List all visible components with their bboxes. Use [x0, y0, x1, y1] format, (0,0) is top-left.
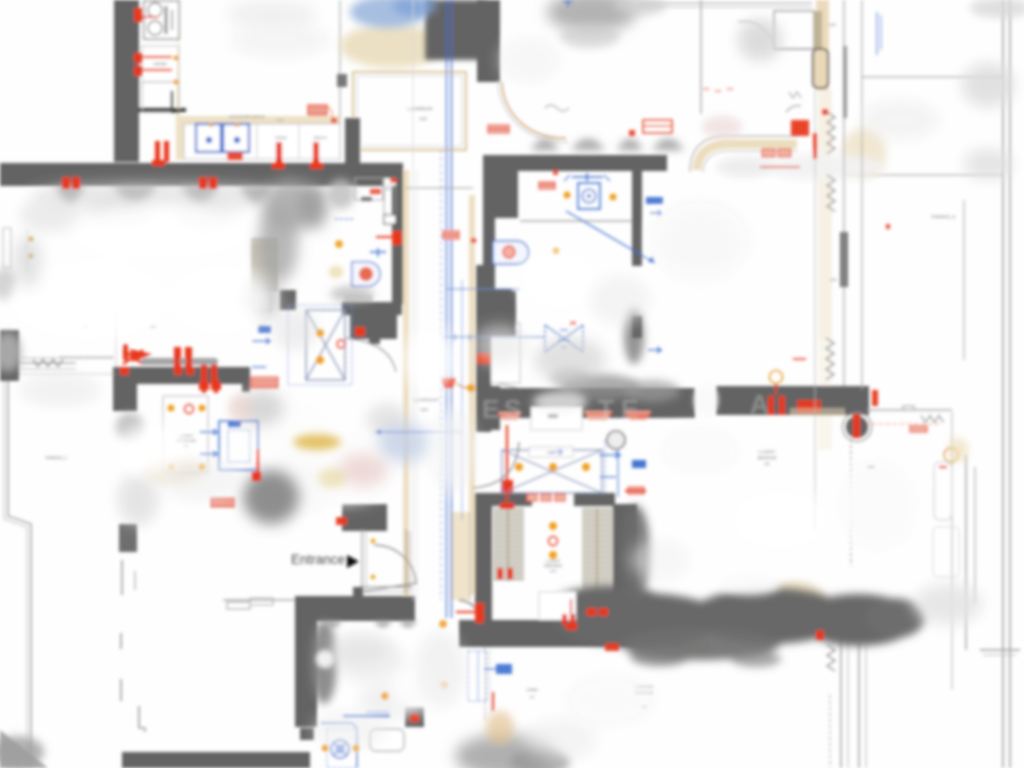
svg-text:Entrance: Entrance — [291, 552, 345, 567]
svg-text:WASH M: WASH M — [314, 136, 327, 140]
svg-text:A: A — [750, 389, 769, 419]
svg-text:S: S — [504, 394, 521, 424]
svg-text:I_CORRIDOR: I_CORRIDOR — [407, 106, 432, 111]
svg-text:TERRACE_A: TERRACE_A — [931, 214, 955, 219]
svg-text:KUCHTA APPLIANCES: KUCHTA APPLIANCES — [229, 115, 265, 119]
svg-text:4x26: 4x26 — [277, 118, 284, 122]
svg-text:4x5: 4x5 — [259, 324, 265, 328]
svg-text:4x26: 4x26 — [419, 117, 427, 121]
svg-text:4x5: 4x5 — [764, 462, 769, 466]
svg-text:E: E — [621, 394, 638, 424]
svg-text:4x26: 4x26 — [550, 569, 557, 573]
svg-text:I_CORRIDOR: I_CORRIDOR — [413, 397, 438, 402]
svg-text:4x5: 4x5 — [530, 695, 535, 699]
svg-text:TERRACE_C: TERRACE_C — [45, 456, 67, 460]
svg-text:4x26: 4x26 — [420, 408, 428, 412]
svg-text:FRIDGE: FRIDGE — [275, 136, 287, 140]
svg-text:E: E — [482, 394, 499, 424]
svg-text:4x26: 4x26 — [829, 23, 836, 27]
svg-text:I_GUEST: I_GUEST — [546, 559, 561, 563]
svg-text:washlight: washlight — [153, 62, 166, 66]
svg-text:T: T — [598, 394, 614, 424]
svg-text:BEDROOM: BEDROOM — [758, 456, 777, 460]
svg-text:II_GUEST: II_GUEST — [759, 450, 776, 454]
svg-text:LIVING: LIVING — [526, 688, 537, 692]
svg-text:4x26: 4x26 — [830, 278, 837, 282]
svg-text:DRESSING: DRESSING — [544, 564, 562, 568]
svg-text:4x26: 4x26 — [868, 465, 875, 469]
